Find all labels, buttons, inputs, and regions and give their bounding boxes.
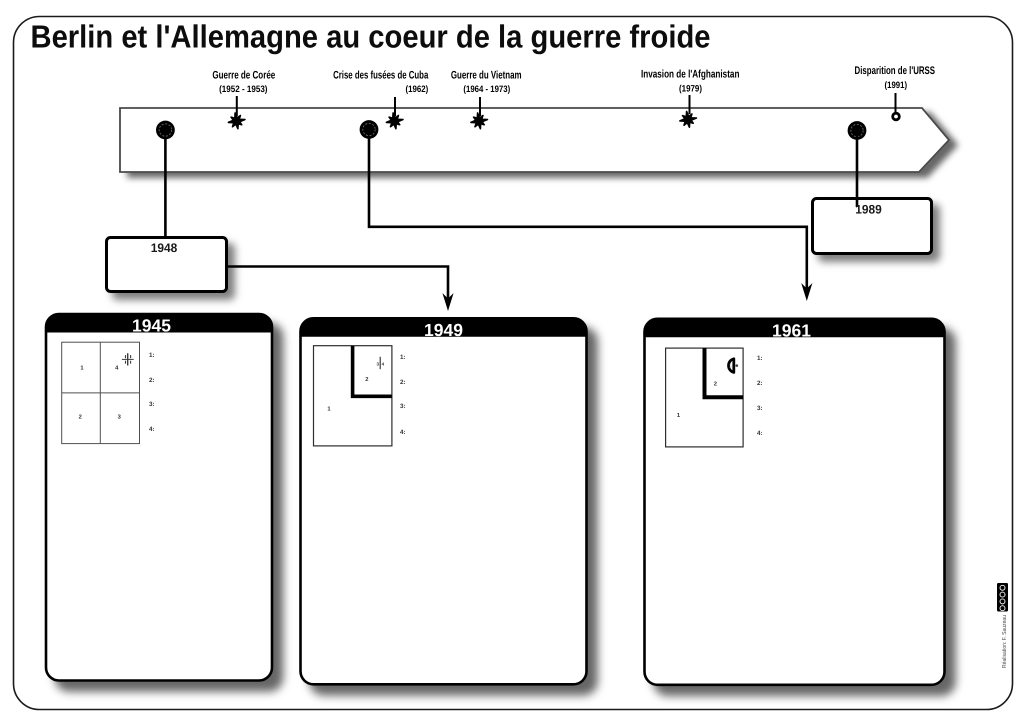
svg-text:3:: 3: bbox=[757, 405, 763, 412]
svg-text:Guerre de Corée: Guerre de Corée bbox=[212, 70, 275, 82]
svg-text:3:: 3: bbox=[400, 403, 406, 410]
svg-text:2:: 2: bbox=[149, 377, 155, 384]
svg-text:1:: 1: bbox=[149, 352, 155, 359]
svg-text:2: 2 bbox=[714, 380, 717, 387]
svg-text:(1952 - 1953): (1952 - 1953) bbox=[219, 84, 267, 94]
svg-text:(1964 - 1973): (1964 - 1973) bbox=[463, 84, 510, 94]
svg-text:2:: 2: bbox=[400, 379, 406, 386]
svg-text:2: 2 bbox=[365, 376, 368, 383]
svg-text:(1962): (1962) bbox=[406, 84, 429, 94]
svg-text:(1991): (1991) bbox=[885, 80, 908, 90]
svg-text:1:: 1: bbox=[757, 355, 763, 362]
svg-text:1961: 1961 bbox=[772, 320, 811, 340]
svg-text:4:: 4: bbox=[149, 426, 155, 433]
svg-text:2: 2 bbox=[79, 414, 82, 421]
svg-text:Guerre du Vietnam: Guerre du Vietnam bbox=[451, 70, 522, 82]
svg-text:(1979): (1979) bbox=[679, 83, 702, 93]
svg-text:Berlin et l'Allemagne au coeur: Berlin et l'Allemagne au coeur de la gue… bbox=[31, 19, 711, 55]
svg-text:4:: 4: bbox=[400, 429, 406, 436]
svg-text:1945: 1945 bbox=[132, 315, 171, 335]
svg-text:Réalisation: F. Sauzeau: Réalisation: F. Sauzeau bbox=[1001, 615, 1008, 668]
svg-text:2:: 2: bbox=[757, 380, 763, 387]
svg-text:3:: 3: bbox=[149, 401, 155, 408]
svg-text:1949: 1949 bbox=[424, 320, 463, 340]
svg-text:Disparition de l'URSS: Disparition de l'URSS bbox=[855, 65, 936, 77]
svg-text:Crise des fusées de Cuba: Crise des fusées de Cuba bbox=[333, 70, 429, 82]
svg-text:4:: 4: bbox=[757, 430, 763, 437]
svg-text:1:: 1: bbox=[400, 354, 406, 361]
svg-text:Invasion de l'Afghanistan: Invasion de l'Afghanistan bbox=[641, 69, 740, 81]
svg-text:1989: 1989 bbox=[855, 203, 882, 217]
svg-text:1948: 1948 bbox=[151, 241, 178, 255]
